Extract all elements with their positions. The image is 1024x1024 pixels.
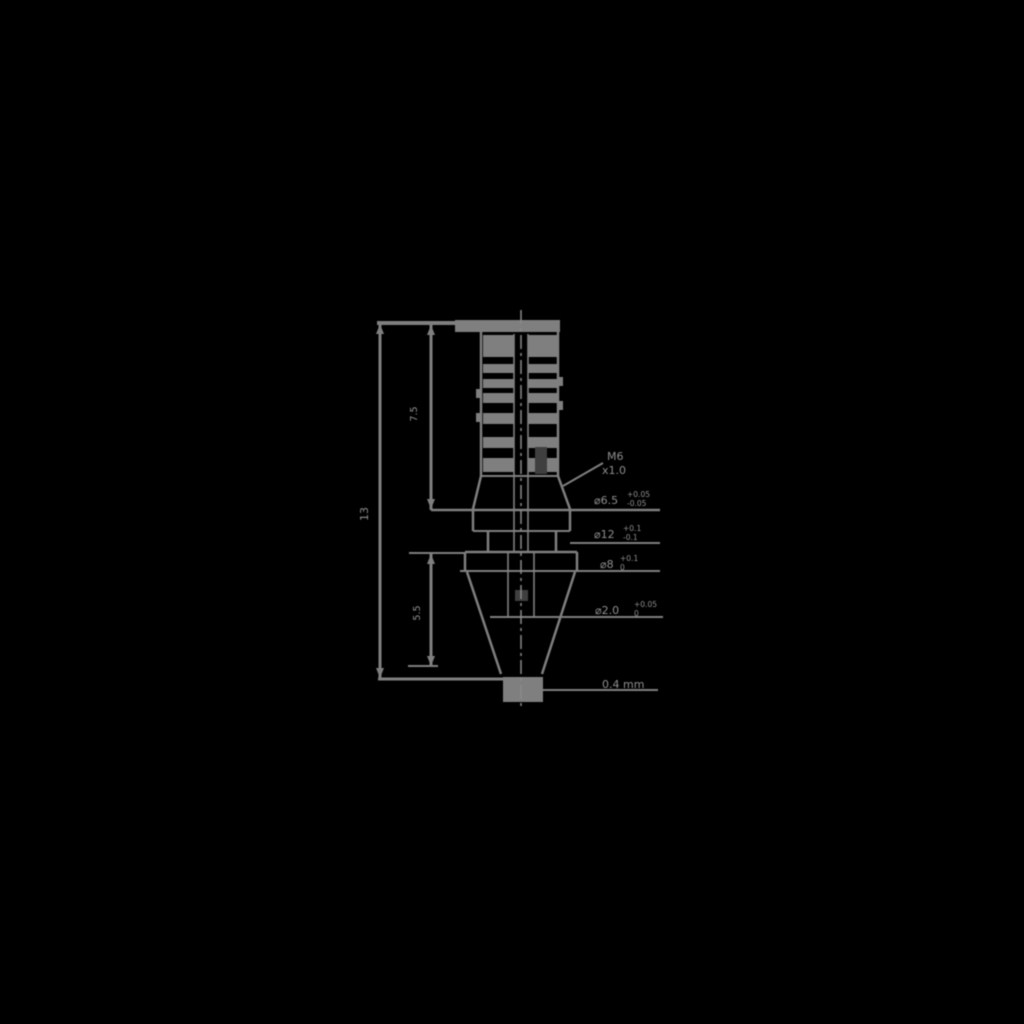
thread-band [528,379,559,388]
thread-band [528,335,559,357]
thread-band [528,364,559,373]
bore-dia-tol-upper: +0.05 [634,600,657,609]
arrow-overall-bottom [376,668,384,678]
thread-bands [476,335,563,472]
cone-left-edge [467,572,501,674]
cone-right-edge [542,572,575,674]
dark-accent-thread [535,447,547,474]
body-dia-tol-lower: -0.1 [623,533,638,542]
thread-band [483,379,514,388]
dimension-arrowheads [376,324,435,678]
tip-flat [503,677,543,702]
thread-leader-line [563,463,603,486]
lower-height-label: 5.5 [412,605,423,620]
chamfer-left [473,476,481,509]
arrow-overall-top [376,324,384,334]
arrow-lower-top [427,554,435,564]
thread-band [528,413,559,424]
hex-dia-tol-upper: +0.1 [620,554,638,563]
dimension-text-labels: 13 7.5 5.5 [358,406,423,620]
thread-band [483,458,514,472]
thread-tip-right [558,377,563,386]
flange-dia-tol-upper: +0.05 [627,490,650,499]
thread-tip-right [558,401,563,410]
arrow-upper-top [427,325,435,335]
thread-callout-line1: M6 [607,450,624,463]
hex-dia-value: ⌀8 [600,558,614,571]
thread-band [483,413,514,424]
bore-dia-tol-lower: 0 [634,609,639,618]
thread-band [483,335,514,357]
chamfer-right [558,476,570,509]
tip-orifice-label: 0.4 mm [602,678,644,691]
top-cap-face [455,320,560,332]
thread-tip-left [476,389,481,398]
upper-height-label: 7.5 [409,406,420,421]
overall-height-label: 13 [358,507,371,521]
thread-band [528,393,559,403]
thread-band [483,393,514,403]
thread-callout-line2: x1.0 [602,464,626,477]
flange-dia-value: ⌀6.5 [594,494,618,507]
body-dia-tol-upper: +0.1 [623,524,641,533]
thread-band [483,437,514,448]
thread-band [483,364,514,373]
arrow-lower-bottom [427,656,435,666]
thread-band [528,437,559,448]
flange-dia-tol-lower: -0.05 [627,499,647,508]
bore-dia-value: ⌀2.0 [595,604,619,617]
nozzle-technical-drawing: 13 7.5 5.5 M6 x1.0 ⌀6.5 +0.05 -0.05 ⌀12 … [0,0,1024,1024]
body-dia-value: ⌀12 [594,528,615,541]
drawing-canvas: 13 7.5 5.5 M6 x1.0 ⌀6.5 +0.05 -0.05 ⌀12 … [0,0,1024,1024]
arrow-upper-bottom [427,499,435,509]
thread-tip-left [476,413,481,422]
hex-dia-tol-lower: 0 [620,563,625,572]
